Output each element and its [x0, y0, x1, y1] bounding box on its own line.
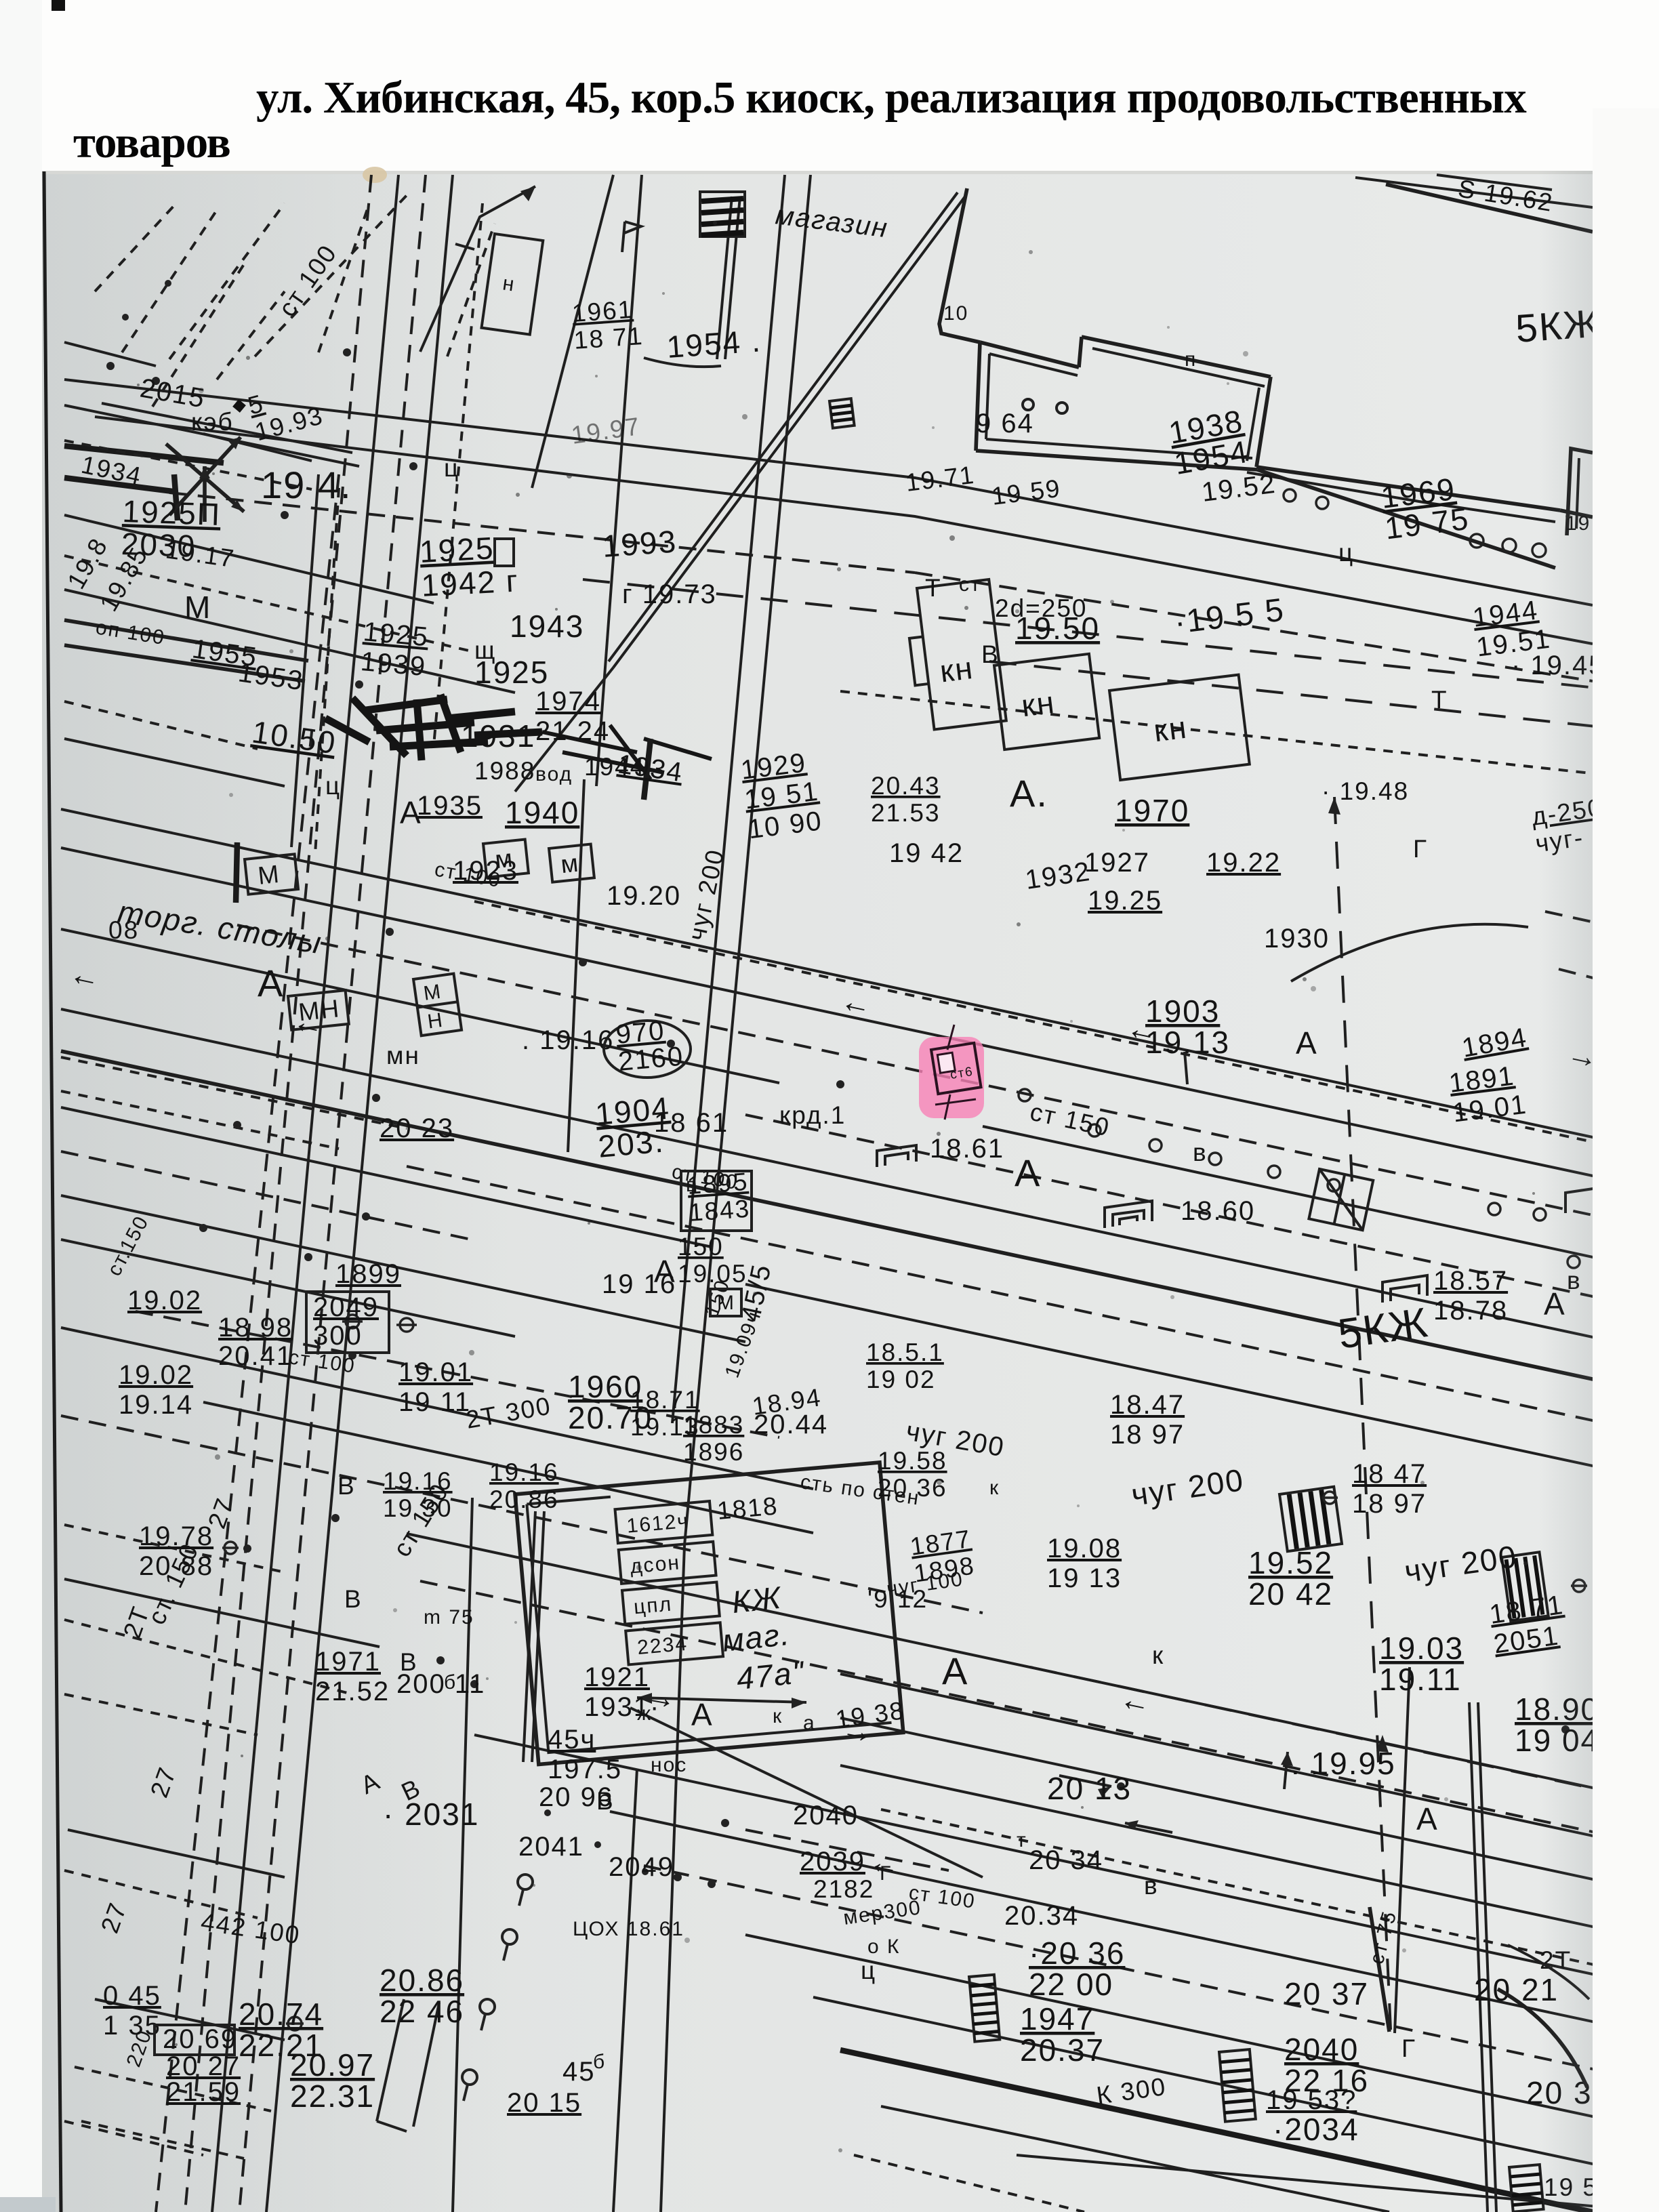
svg-text:22.31: 22.31 — [290, 2078, 375, 2114]
svg-text:18.57: 18.57 — [1433, 1266, 1508, 1296]
svg-text:19.20: 19.20 — [607, 881, 681, 911]
svg-text:1818: 1818 — [716, 1492, 779, 1525]
svg-text:1947: 1947 — [1020, 2001, 1094, 2036]
svg-text:А: А — [400, 795, 422, 830]
svg-text:ст: ст — [959, 573, 981, 596]
svg-text:19.14: 19.14 — [119, 1390, 193, 1420]
svg-text:КЖ: КЖ — [730, 1580, 783, 1620]
svg-text:20.86: 20.86 — [380, 1963, 464, 1998]
svg-text:18 61: 18 61 — [654, 1108, 729, 1138]
svg-text:19.02: 19.02 — [127, 1286, 202, 1315]
svg-text:2234: 2234 — [636, 1633, 689, 1659]
svg-text:В: В — [981, 640, 1000, 668]
svg-text:2041: 2041 — [518, 1832, 584, 1862]
svg-text:ЦОХ 18.61: ЦОХ 18.61 — [573, 1918, 684, 1940]
svg-text:м: м — [559, 849, 581, 879]
svg-text:о К: о К — [867, 1935, 901, 1958]
svg-text:1954 .: 1954 . — [665, 323, 762, 365]
svg-text:А: А — [1015, 1151, 1041, 1194]
svg-text:19.13: 19.13 — [1145, 1025, 1230, 1060]
svg-text:21.53: 21.53 — [871, 799, 941, 827]
svg-text:товаров: товаров — [73, 117, 230, 167]
svg-text:18.47: 18.47 — [1110, 1390, 1185, 1420]
svg-text:2040: 2040 — [1284, 2032, 1359, 2067]
svg-text:18.5.1: 18.5.1 — [866, 1338, 944, 1366]
svg-text:2039: 2039 — [800, 1847, 865, 1877]
svg-text:19.50: 19.50 — [1015, 611, 1100, 646]
svg-text:1925: 1925 — [419, 530, 495, 569]
svg-text:А: А — [1296, 1025, 1318, 1061]
svg-text:19.22: 19.22 — [1206, 848, 1281, 878]
svg-text:· 19.48: · 19.48 — [1322, 777, 1409, 805]
svg-text:1974: 1974 — [535, 687, 601, 716]
svg-text:б: б — [444, 1671, 457, 1694]
svg-text:19.25: 19.25 — [1088, 886, 1162, 916]
svg-text:18 47: 18 47 — [1352, 1459, 1427, 1489]
svg-text:1896: 1896 — [683, 1438, 744, 1466]
svg-text:М: М — [184, 590, 211, 625]
svg-text:А: А — [1416, 1801, 1439, 1837]
svg-text:к: к — [1152, 1641, 1164, 1669]
svg-text:ц: ц — [444, 454, 459, 482]
svg-text:19 53?: 19 53? — [1266, 2085, 1357, 2115]
svg-text:п: п — [1185, 348, 1197, 371]
svg-text:М: М — [422, 981, 443, 1005]
svg-text:20.97: 20.97 — [290, 2047, 375, 2083]
svg-text:0 45: 0 45 — [103, 1981, 161, 2011]
svg-text:Г: Г — [1401, 2034, 1416, 2062]
svg-text:1921: 1921 — [584, 1662, 650, 1692]
svg-text:1927: 1927 — [1084, 848, 1150, 878]
svg-text:20.41: 20.41 — [218, 1341, 293, 1371]
svg-text:20.43: 20.43 — [871, 772, 941, 800]
svg-text:в: в — [1193, 1139, 1208, 1166]
svg-text:·2034: ·2034 — [1273, 2112, 1359, 2147]
svg-text:19 11: 19 11 — [398, 1387, 471, 1417]
svg-text:20.37: 20.37 — [1020, 2032, 1105, 2068]
svg-text:кн: кн — [1152, 710, 1189, 749]
svg-text:к: к — [989, 1477, 1000, 1499]
svg-text:А: А — [691, 1697, 714, 1732]
svg-text:А: А — [654, 1254, 676, 1289]
svg-text:19.11: 19.11 — [1379, 1662, 1462, 1697]
svg-text:1943: 1943 — [510, 609, 584, 644]
svg-text:ц: ц — [1338, 539, 1354, 567]
svg-text:22 00: 22 00 — [1029, 1967, 1113, 2002]
svg-text:19.52: 19.52 — [1248, 1545, 1333, 1580]
svg-text:дсон: дсон — [630, 1551, 682, 1578]
svg-text:к: к — [773, 1705, 783, 1727]
svg-text:20 37: 20 37 — [1284, 1976, 1369, 2011]
svg-text:Т: Т — [925, 574, 942, 602]
svg-text:1939: 1939 — [359, 647, 427, 682]
svg-text:ц: ц — [861, 1957, 876, 1984]
svg-text:б: б — [593, 2051, 606, 2073]
svg-text:1988: 1988 — [474, 757, 535, 785]
svg-text:18 97: 18 97 — [1352, 1489, 1427, 1519]
svg-text:в: в — [1144, 1872, 1159, 1900]
svg-text:М: М — [257, 860, 282, 890]
svg-text:2040: 2040 — [793, 1801, 859, 1830]
svg-text:2182: 2182 — [813, 1875, 874, 1903]
svg-text:19 4.: 19 4. — [261, 464, 352, 506]
svg-text:А: А — [942, 1650, 968, 1692]
svg-text:197.5: 197.5 — [548, 1755, 622, 1784]
svg-text:ж: ж — [637, 1702, 652, 1725]
svg-text:'9 12: '9 12 — [867, 1585, 928, 1613]
svg-text:20 13: 20 13 — [1047, 1771, 1132, 1806]
svg-text:В: В — [344, 1585, 363, 1613]
svg-text:ц: ц — [325, 772, 341, 800]
svg-text:1931: 1931 — [461, 718, 535, 754]
svg-text:18.71: 18.71 — [630, 1386, 700, 1414]
svg-text:20 36: 20 36 — [878, 1474, 947, 1502]
svg-text:кэб: кэб — [191, 408, 234, 436]
svg-text:19 13: 19 13 — [1047, 1563, 1122, 1593]
svg-text:21.59: 21.59 — [166, 2077, 241, 2107]
svg-text:А.: А. — [1010, 772, 1048, 815]
svg-text:9 64: 9 64 — [976, 409, 1034, 438]
svg-text:В: В — [596, 1787, 615, 1815]
svg-text:цпл: цпл — [633, 1593, 674, 1618]
svg-text:1971: 1971 — [315, 1647, 381, 1677]
svg-text:20 34: 20 34 — [1029, 1845, 1103, 1875]
svg-text:кн: кн — [1019, 684, 1057, 724]
svg-text:а: а — [803, 1712, 816, 1734]
svg-text:1923: 1923 — [453, 856, 518, 886]
svg-text:18.78: 18.78 — [1433, 1296, 1508, 1326]
svg-text:20 69: 20 69 — [163, 2024, 237, 2054]
svg-text:18 97: 18 97 — [1110, 1420, 1185, 1450]
svg-text:Г: Г — [1413, 835, 1428, 863]
svg-text:19.01: 19.01 — [398, 1357, 473, 1387]
svg-text:20 23: 20 23 — [380, 1113, 454, 1143]
svg-text:18 71: 18 71 — [573, 322, 644, 354]
svg-text:1940: 1940 — [505, 795, 579, 830]
svg-text:19 42: 19 42 — [889, 838, 964, 868]
svg-text:г 19.73: г 19.73 — [622, 579, 717, 609]
svg-text:150: 150 — [678, 1233, 724, 1261]
svg-text:Г: Г — [880, 1862, 892, 1885]
svg-text:19.58: 19.58 — [878, 1447, 947, 1475]
svg-text:300: 300 — [313, 1321, 363, 1351]
svg-text:крд.1: крд.1 — [779, 1101, 846, 1129]
svg-text:18.61: 18.61 — [930, 1134, 1004, 1164]
svg-text:маг.: маг. — [720, 1616, 792, 1658]
svg-text:2160: 2160 — [617, 1042, 684, 1077]
svg-text:А: А — [258, 962, 284, 1004]
svg-text:19.03: 19.03 — [1379, 1631, 1464, 1666]
svg-text:20 15: 20 15 — [507, 2088, 581, 2118]
svg-text:Т: Т — [1431, 686, 1448, 714]
svg-text:мн: мн — [386, 1042, 420, 1069]
svg-text:1903: 1903 — [1145, 994, 1220, 1029]
svg-text:08: 08 — [108, 916, 139, 944]
svg-text:1935: 1935 — [417, 791, 483, 821]
svg-text:1993: 1993 — [601, 523, 678, 564]
svg-text:2049: 2049 — [609, 1852, 674, 1882]
svg-text:1930: 1930 — [1264, 924, 1330, 954]
svg-text:1883: 1883 — [683, 1411, 744, 1439]
svg-text:18.60: 18.60 — [1181, 1196, 1255, 1226]
svg-text:· 2031: · 2031 — [383, 1797, 479, 1832]
svg-text:вод: вод — [535, 763, 573, 785]
svg-text:2049: 2049 — [313, 1292, 379, 1322]
svg-text:200 11: 200 11 — [396, 1669, 485, 1699]
svg-text:21.52: 21.52 — [315, 1677, 390, 1706]
svg-text:т: т — [1017, 1829, 1027, 1851]
svg-text:20.74: 20.74 — [239, 1996, 323, 2032]
svg-text:21 24: 21 24 — [535, 716, 610, 746]
svg-text:19.08: 19.08 — [1047, 1534, 1122, 1563]
svg-text:18 98: 18 98 — [218, 1313, 293, 1343]
svg-text:·20 36: ·20 36 — [1029, 1935, 1125, 1971]
svg-text:1899: 1899 — [335, 1259, 401, 1289]
svg-text:нос: нос — [651, 1754, 687, 1776]
svg-text:20.86: 20.86 — [489, 1486, 559, 1513]
svg-text:В: В — [337, 1472, 356, 1500]
svg-text:45ч: 45ч — [548, 1725, 596, 1755]
svg-text:1843: 1843 — [688, 1195, 751, 1227]
svg-text:1942 г: 1942 г — [420, 562, 519, 602]
svg-text:20 42: 20 42 — [1248, 1576, 1333, 1612]
svg-text:m 75: m 75 — [424, 1606, 474, 1629]
svg-text:Н: Н — [426, 1009, 445, 1033]
svg-text:45: 45 — [562, 2057, 596, 2087]
svg-text:1925: 1925 — [474, 655, 549, 690]
svg-text:19 02: 19 02 — [866, 1366, 936, 1393]
svg-text:. 19.16: . 19.16 — [522, 1025, 614, 1055]
svg-text:. 19.95: . 19.95 — [1291, 1746, 1396, 1781]
svg-text:10: 10 — [943, 302, 968, 325]
svg-text:19.02: 19.02 — [119, 1360, 193, 1390]
svg-text:47а": 47а" — [735, 1654, 807, 1696]
svg-text:кн: кн — [938, 650, 975, 689]
svg-text:19.16: 19.16 — [489, 1458, 559, 1486]
svg-text:М: М — [717, 1292, 735, 1314]
svg-text:ул. Хибинская, 45, кор.5 киоск: ул. Хибинская, 45, кор.5 киоск, реализац… — [256, 73, 1527, 123]
svg-text:1970: 1970 — [1115, 793, 1189, 828]
svg-text:22 46: 22 46 — [380, 1994, 464, 2029]
svg-text:20.34: 20.34 — [1004, 1901, 1079, 1931]
